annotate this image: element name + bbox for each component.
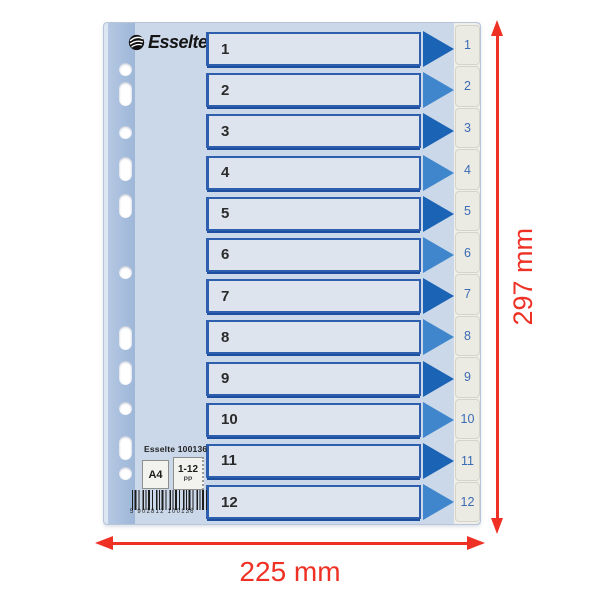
esselte-swirl-icon: [128, 34, 145, 51]
row-number: 2: [209, 82, 229, 99]
width-dimension-label: 225 mm: [95, 556, 485, 588]
range-text: 1-12: [178, 464, 198, 475]
label-box: 8: [206, 320, 421, 354]
punch-hole: [119, 436, 132, 460]
arrow-right-icon: [423, 72, 454, 108]
product-image: Esselte 1 2 3 4 5: [0, 0, 600, 600]
punch-hole: [119, 326, 132, 350]
index-row: 5: [206, 197, 454, 231]
height-dimension-label: 297 mm: [508, 228, 539, 326]
arrow-right-head-icon: [467, 536, 485, 550]
tab: 6: [455, 232, 480, 273]
punch-hole: [119, 126, 132, 139]
label-box: 5: [206, 197, 421, 231]
punch-hole: [119, 157, 132, 181]
index-row: 12: [206, 485, 454, 519]
index-rows: 1 2 3 4 5 6 7: [206, 32, 454, 526]
index-row: 7: [206, 279, 454, 313]
index-row: 3: [206, 114, 454, 148]
dimension-line-vertical: [496, 33, 499, 521]
tab-rail: 1 2 3 4 5 6 7 8 9 10 11 12: [454, 23, 480, 524]
dimension-line-horizontal: [109, 542, 471, 545]
punch-hole: [119, 82, 132, 106]
row-number: 7: [209, 288, 229, 305]
range-badge: 1-12 PP: [173, 457, 204, 490]
tab: 4: [455, 149, 480, 190]
punch-hole-strip: [108, 23, 135, 524]
product-code-label: Esselte 100136: [144, 444, 207, 454]
index-row: 11: [206, 444, 454, 478]
punch-hole: [119, 467, 132, 480]
arrow-right-icon: [423, 443, 454, 479]
tab: 12: [455, 482, 480, 523]
row-number: 11: [209, 452, 237, 469]
label-box: 12: [206, 485, 421, 519]
arrow-right-icon: [423, 361, 454, 397]
arrow-right-icon: [423, 319, 454, 355]
tab: 7: [455, 274, 480, 315]
row-number: 3: [209, 123, 229, 140]
height-dimension: 297 mm: [488, 20, 558, 534]
punch-hole: [119, 402, 132, 415]
punch-hole: [119, 63, 132, 76]
label-box: 6: [206, 238, 421, 272]
label-box: 3: [206, 114, 421, 148]
arrow-right-icon: [423, 196, 454, 232]
barcode: [132, 490, 208, 510]
tab: 5: [455, 191, 480, 232]
index-row: 1: [206, 32, 454, 66]
row-number: 12: [209, 494, 238, 511]
tab: 2: [455, 66, 480, 107]
brand-text: Esselte: [148, 32, 208, 53]
tab: 11: [455, 440, 480, 481]
tab: 3: [455, 108, 480, 149]
tab: 9: [455, 357, 480, 398]
index-row: 2: [206, 73, 454, 107]
row-number: 1: [209, 41, 229, 58]
row-number: 10: [209, 411, 238, 428]
punch-hole: [119, 194, 132, 218]
label-box: 1: [206, 32, 421, 66]
label-box: 9: [206, 362, 421, 396]
tab: 10: [455, 399, 480, 440]
index-row: 10: [206, 403, 454, 437]
label-box: 2: [206, 73, 421, 107]
tab: 1: [455, 25, 480, 66]
esselte-logo: Esselte: [128, 32, 208, 53]
punch-hole: [119, 361, 132, 385]
row-number: 4: [209, 164, 229, 181]
row-number: 9: [209, 370, 229, 387]
arrow-right-icon: [423, 278, 454, 314]
divider-sheet: Esselte 1 2 3 4 5: [103, 22, 481, 525]
material-text: PP: [184, 476, 193, 483]
arrow-right-icon: [423, 31, 454, 67]
row-number: 8: [209, 329, 229, 346]
arrow-right-icon: [423, 484, 454, 520]
label-box: 4: [206, 156, 421, 190]
width-dimension: 225 mm: [95, 536, 485, 592]
label-box: 11: [206, 444, 421, 478]
arrow-right-icon: [423, 113, 454, 149]
row-number: 5: [209, 205, 229, 222]
punch-hole: [119, 266, 132, 279]
arrow-right-icon: [423, 402, 454, 438]
arrow-right-icon: [423, 155, 454, 191]
format-badge: A4: [142, 460, 169, 489]
arrow-right-icon: [423, 237, 454, 273]
index-row: 8: [206, 320, 454, 354]
index-row: 9: [206, 362, 454, 396]
barcode-digits: 5 902812 100136: [130, 509, 210, 515]
tab: 8: [455, 316, 480, 357]
label-box: 10: [206, 403, 421, 437]
arrow-down-icon: [491, 518, 503, 534]
label-box: 7: [206, 279, 421, 313]
index-row: 6: [206, 238, 454, 272]
row-number: 6: [209, 246, 229, 263]
index-row: 4: [206, 156, 454, 190]
